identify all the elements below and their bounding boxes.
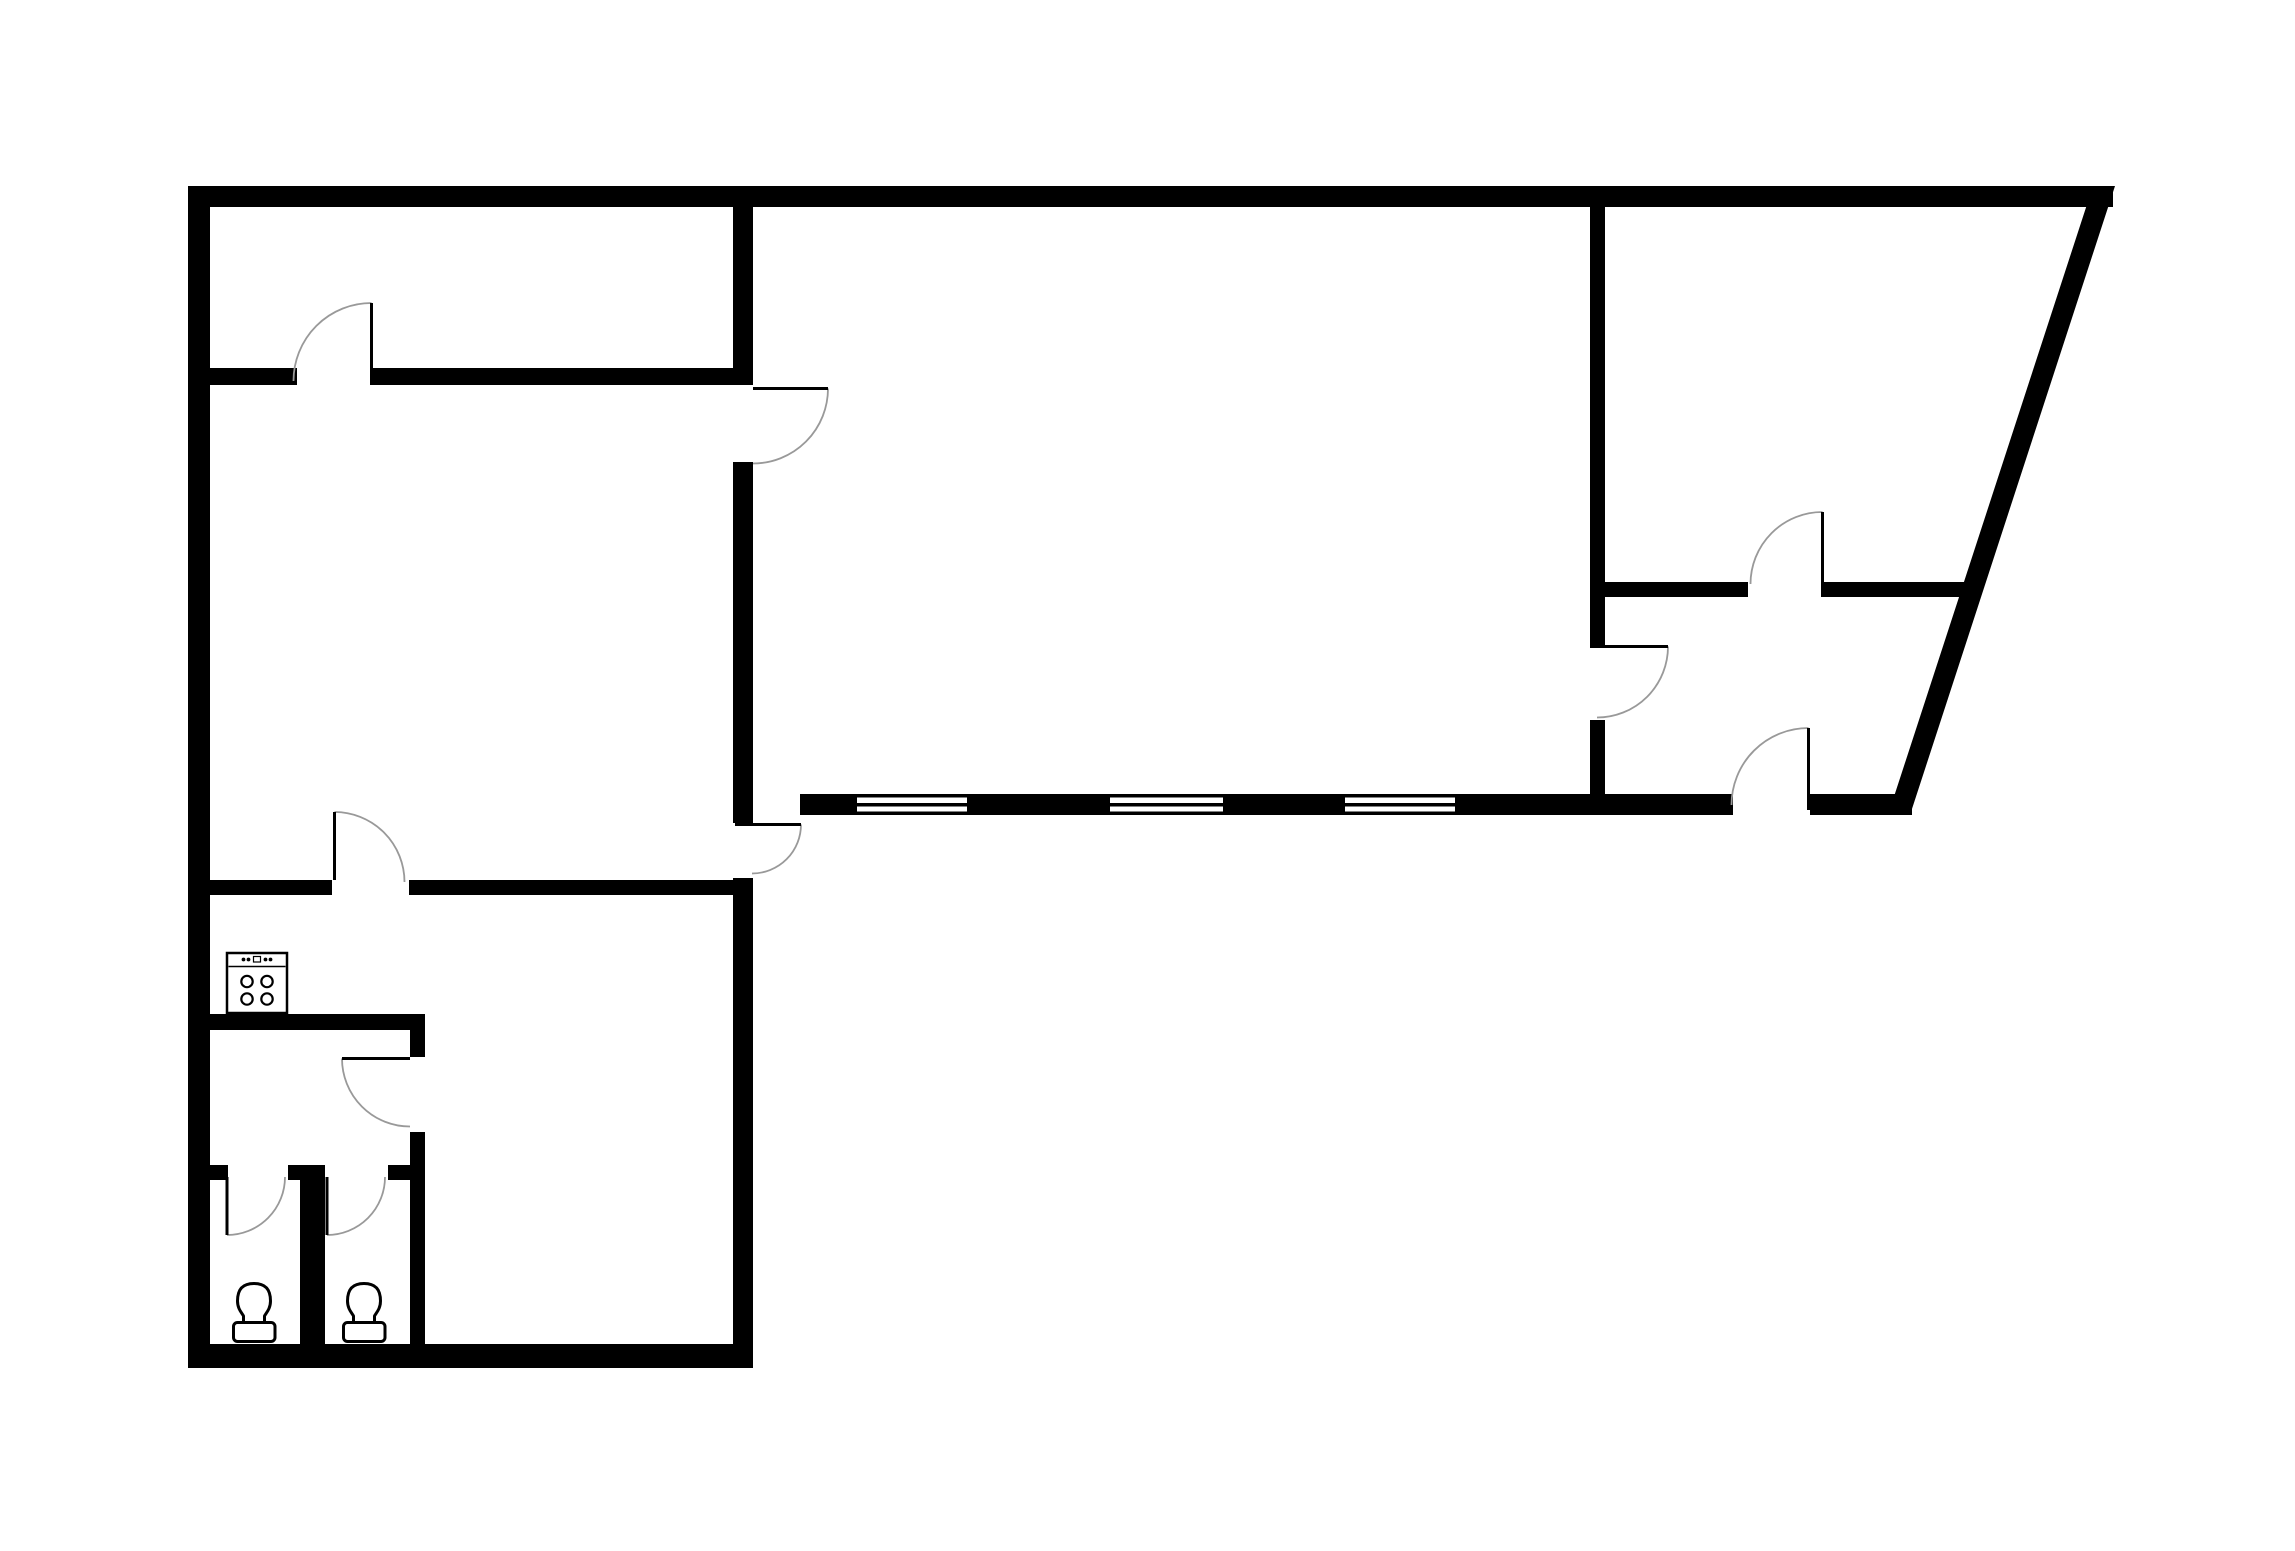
door-arc-upperleft-room [294,303,372,381]
wall-stall-header-b [288,1165,325,1180]
door-arc-right-divider [1751,512,1823,584]
door-arc-corner-lowerleft [752,825,801,874]
stove-icon-knob-1 [242,958,246,962]
door-arc-bottom-entrance [1732,728,1809,805]
door-arc-central-to-right [1597,647,1668,718]
window-1-bottom-edge [857,812,967,816]
door-arc-toilet-stall-2 [327,1177,385,1235]
wall-center-vertical-top [733,207,753,385]
wall-center-vertical-mid [733,462,753,823]
window-2-top-edge [1110,794,1223,798]
door-arc-toilet-stall-1 [227,1177,285,1235]
floorplan-canvas: Black and white architectural floor plan… [0,0,2295,1551]
window-1-mid-line [857,803,967,807]
floorplan-page: Black and white architectural floor plan… [0,0,2295,1551]
stove-icon-burner-2 [261,976,272,987]
wall-right-divider-a [1605,582,1748,597]
toilet-icon-1-bowl [238,1284,271,1323]
wall-central-bottom-a [800,794,857,815]
stove-icon-burner-4 [261,993,272,1004]
stove-icon-knob-4 [269,958,273,962]
wall-upperleft-divider-a [210,368,297,385]
wall-central-bottom-c [1223,794,1345,815]
stove-icon-knob-3 [264,958,268,962]
wall-central-bottom-b [967,794,1110,815]
door-arc-bath-vestibule [342,1059,410,1127]
wall-right-divider-b [1823,582,1975,597]
window-1-top-edge [857,794,967,798]
window-2-bottom-edge [1110,812,1223,816]
stove-icon-knob-2 [247,958,251,962]
window-3-top-edge [1345,794,1455,798]
stove-icon-burner-3 [241,993,252,1004]
wall-right-vertical-low [1590,720,1605,815]
stove-icon-knob-switch [254,957,261,963]
wall-bath-right-a [410,1030,425,1057]
wall-outer-left [188,186,210,1368]
wall-outer-slanted [1888,186,2115,815]
wall-bath-right-b [410,1132,425,1344]
window-3-bottom-edge [1345,812,1455,816]
stove-icon-burner-1 [241,976,252,987]
wall-center-vertical-low [733,878,753,1344]
window-2-mid-line [1110,803,1223,807]
wall-stall-header-c [388,1165,410,1180]
wall-bath-top [210,1014,425,1030]
door-arc-kitchen [335,812,405,882]
wall-stall-middle [300,1180,325,1344]
toilet-icon-1-tank [234,1323,276,1342]
wall-upperleft-divider-b [372,368,733,385]
wall-kitchen-top-a [210,880,332,895]
toilet-icon-2-tank [344,1323,386,1342]
window-3-mid-line [1345,803,1455,807]
wall-outer-bottom-left [188,1344,753,1368]
wall-right-vertical-top [1590,207,1605,645]
wall-stall-header-a [210,1165,228,1180]
toilet-icon-2-bowl [348,1284,381,1323]
wall-outer-top [188,186,2113,207]
floorplan-shapes [188,186,2115,1368]
wall-central-bottom-e [1810,794,1912,815]
wall-kitchen-top-b [409,880,733,895]
door-arc-midleft-to-central [753,389,828,464]
